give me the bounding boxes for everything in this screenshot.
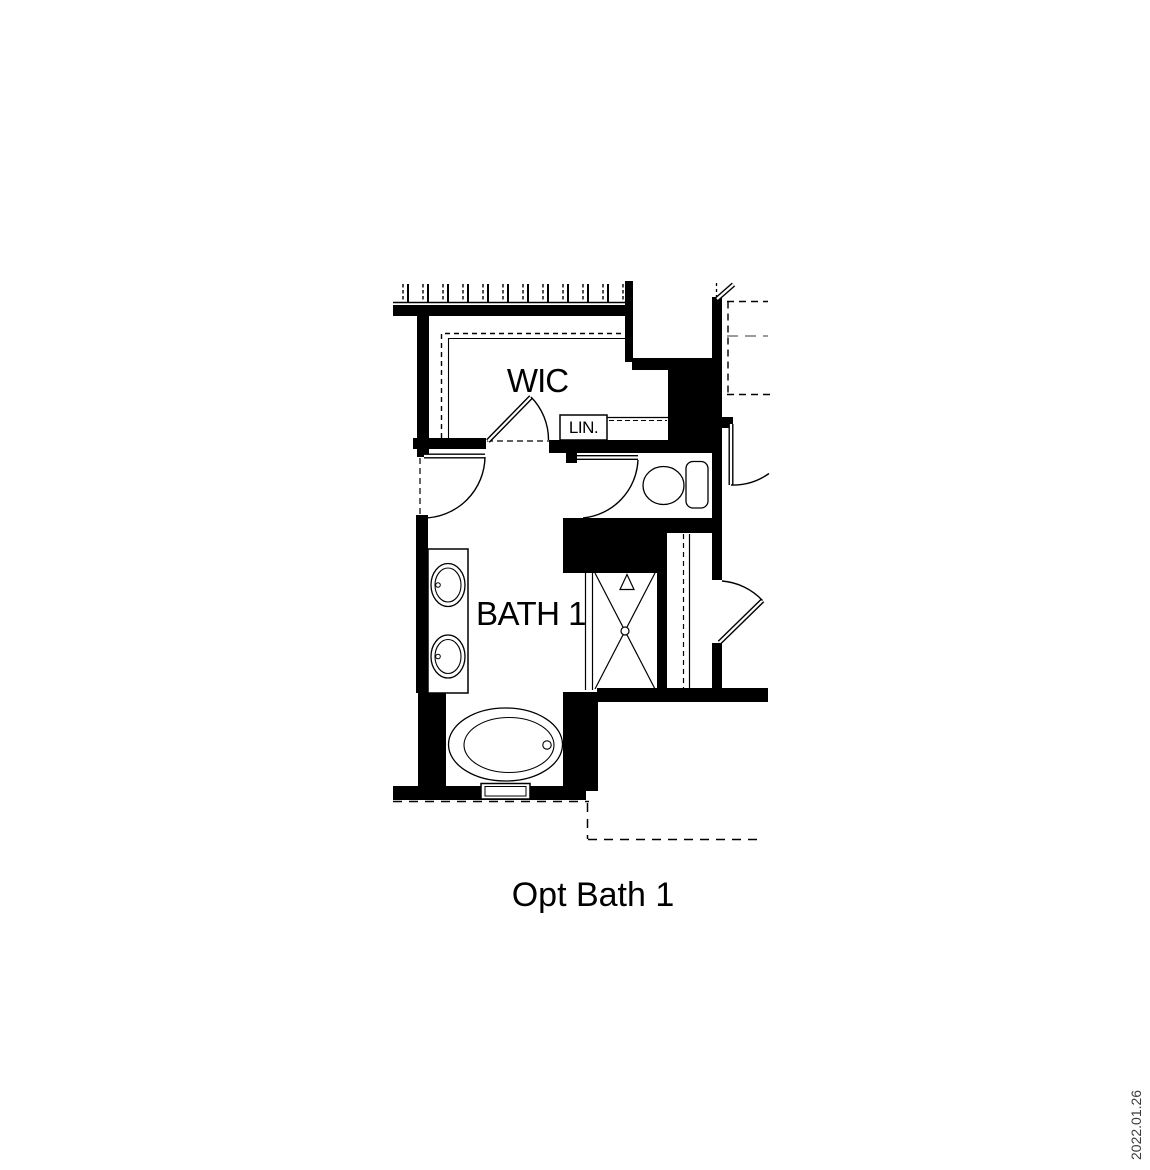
dashed-option-outline-top bbox=[727, 302, 770, 396]
bedroom-door bbox=[731, 424, 769, 485]
wic-door bbox=[487, 397, 549, 441]
walls bbox=[393, 281, 768, 800]
bath-entry-door bbox=[420, 456, 485, 518]
room-label-bath1: BATH 1 bbox=[446, 597, 616, 632]
vestibule-door bbox=[720, 581, 763, 643]
revision-date: 2022.01.26 bbox=[1128, 1090, 1144, 1160]
floorplan-sheet: WIC BATH 1 LIN. Opt Bath 1 2022.01.26 bbox=[0, 0, 1150, 1170]
floorplan-drawing bbox=[0, 0, 1150, 1170]
room-label-linen: LIN. bbox=[560, 415, 607, 440]
corner-door-leaf bbox=[717, 283, 734, 299]
plan-caption: Opt Bath 1 bbox=[463, 876, 723, 915]
wall-notch bbox=[586, 791, 598, 800]
dashed-option-outline-bottom bbox=[393, 802, 764, 840]
shelf-lines-vestibule bbox=[684, 534, 690, 688]
toilet-icon bbox=[643, 462, 708, 509]
room-label-wic: WIC bbox=[470, 364, 605, 399]
bathtub-icon bbox=[449, 708, 563, 799]
closet-rod-hatching-icon bbox=[393, 284, 632, 303]
toilet-room-door bbox=[577, 458, 638, 519]
